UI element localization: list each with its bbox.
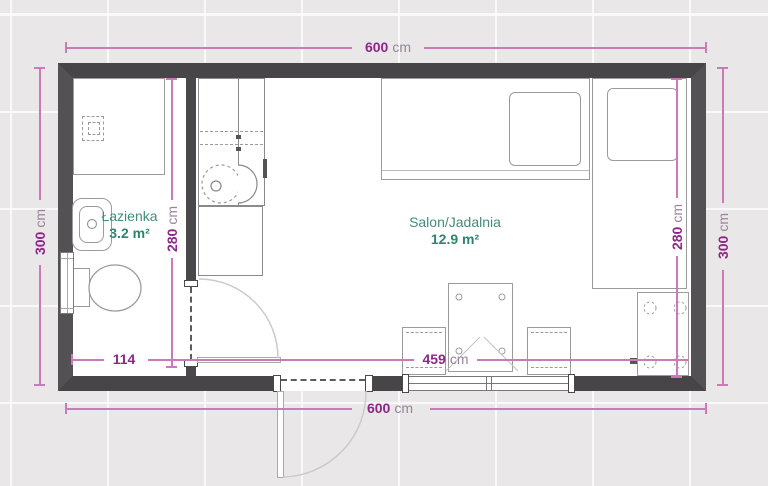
dim-width-tick-left	[71, 354, 73, 365]
chair-left-back	[406, 332, 442, 333]
bed-horizontal-frame-line	[382, 170, 589, 171]
dim-salon-label: 280cm	[669, 204, 685, 250]
interior-door-opening	[190, 287, 192, 360]
dim-bath-line-a	[171, 79, 173, 200]
window-glass-line	[409, 383, 568, 384]
partition-wall-stub	[186, 367, 196, 376]
kitchen-door-handle	[263, 159, 267, 178]
dim-top-line-a	[66, 47, 352, 49]
floorplan: Łazienka 3.2 m² Salon/Jadalnia 12.9 m² 6…	[0, 0, 768, 486]
dim-right-line-a	[722, 68, 724, 203]
kitchen-unit[interactable]	[198, 78, 265, 206]
dim-left-tick-top	[34, 67, 45, 69]
radiator[interactable]	[60, 252, 74, 314]
dim-right-tick-top	[717, 67, 728, 69]
dim-salon-tick-top	[671, 78, 682, 80]
dim-left-line-a	[39, 68, 41, 200]
dim-width-line-b	[148, 359, 414, 361]
exterior-door-jamb-left	[273, 375, 281, 392]
exterior-door-jamb-right	[365, 375, 373, 392]
toilet-tank[interactable]	[73, 268, 90, 307]
room-name: Salon/Jadalnia	[395, 214, 515, 231]
dim-bottom-line-a	[66, 408, 352, 410]
dim-salon-line-a	[676, 79, 678, 198]
kitchen-worktop-divider	[238, 79, 239, 205]
dim-width-line-a	[72, 359, 104, 361]
room-name: Łazienka	[92, 208, 167, 225]
radiator-line-mid	[67, 253, 68, 313]
bed-horizontal-pillow	[509, 92, 581, 166]
dim-bath-tick-bottom	[166, 366, 177, 368]
window-mullion-2	[491, 377, 492, 390]
dim-top-tick-left	[65, 42, 67, 53]
storage-cabinet[interactable]	[637, 292, 689, 376]
room-label-living: Salon/Jadalnia 12.9 m²	[395, 214, 515, 248]
chair-right-seat	[531, 367, 567, 368]
window-mullion-1	[486, 377, 487, 390]
dim-top-line-b	[424, 47, 706, 49]
dim-bath-label: 280cm	[164, 206, 180, 252]
dim-top-label: 600cm	[352, 39, 424, 55]
cabinet-fridge[interactable]	[198, 206, 263, 276]
dim-right-line-b	[722, 270, 724, 386]
room-area: 12.9 m²	[395, 231, 515, 248]
exterior-door-opening	[281, 379, 365, 381]
door-jamb-top	[184, 280, 198, 287]
bed-vertical-pillow	[607, 88, 678, 161]
room-area: 3.2 m²	[92, 225, 167, 242]
chair-left-seat	[406, 367, 442, 368]
dim-bath-line-b	[171, 258, 173, 368]
dim-right-label: 300cm	[715, 213, 731, 259]
dim-bath-width-label: 114	[104, 351, 148, 367]
dim-bottom-label: 600cm	[350, 400, 430, 416]
shower-drain-inner-icon	[88, 122, 100, 135]
kitchen-dash-line-2	[200, 144, 263, 145]
dim-salon-tick-bottom	[671, 376, 682, 378]
kitchen-dash-line-1	[200, 131, 263, 132]
room-label-bathroom: Łazienka 3.2 m²	[92, 208, 167, 242]
exterior-door-leaf[interactable]	[277, 391, 284, 478]
dim-bottom-tick-left	[65, 403, 67, 414]
kitchen-handle-2	[236, 147, 241, 151]
chair-right[interactable]	[527, 327, 571, 375]
dim-bath-tick-top	[166, 78, 177, 80]
dim-bottom-line-b	[430, 408, 706, 410]
kitchen-handle-1	[236, 135, 241, 139]
dim-salon-width-label: 459cm	[414, 351, 477, 367]
dim-left-line-b	[39, 265, 41, 386]
door-jamb-bottom	[184, 360, 198, 367]
dim-width-line-c	[477, 359, 689, 361]
dim-top-tick-right	[705, 42, 707, 53]
window-jamb-right	[568, 374, 575, 393]
dim-left-tick-bottom	[34, 384, 45, 386]
window-jamb-left	[402, 374, 409, 393]
chair-right-back	[531, 332, 567, 333]
dim-left-label: 300cm	[32, 209, 48, 255]
dim-bottom-tick-right	[705, 403, 707, 414]
partition-wall-upper	[186, 78, 196, 280]
dim-right-tick-bottom	[717, 384, 728, 386]
